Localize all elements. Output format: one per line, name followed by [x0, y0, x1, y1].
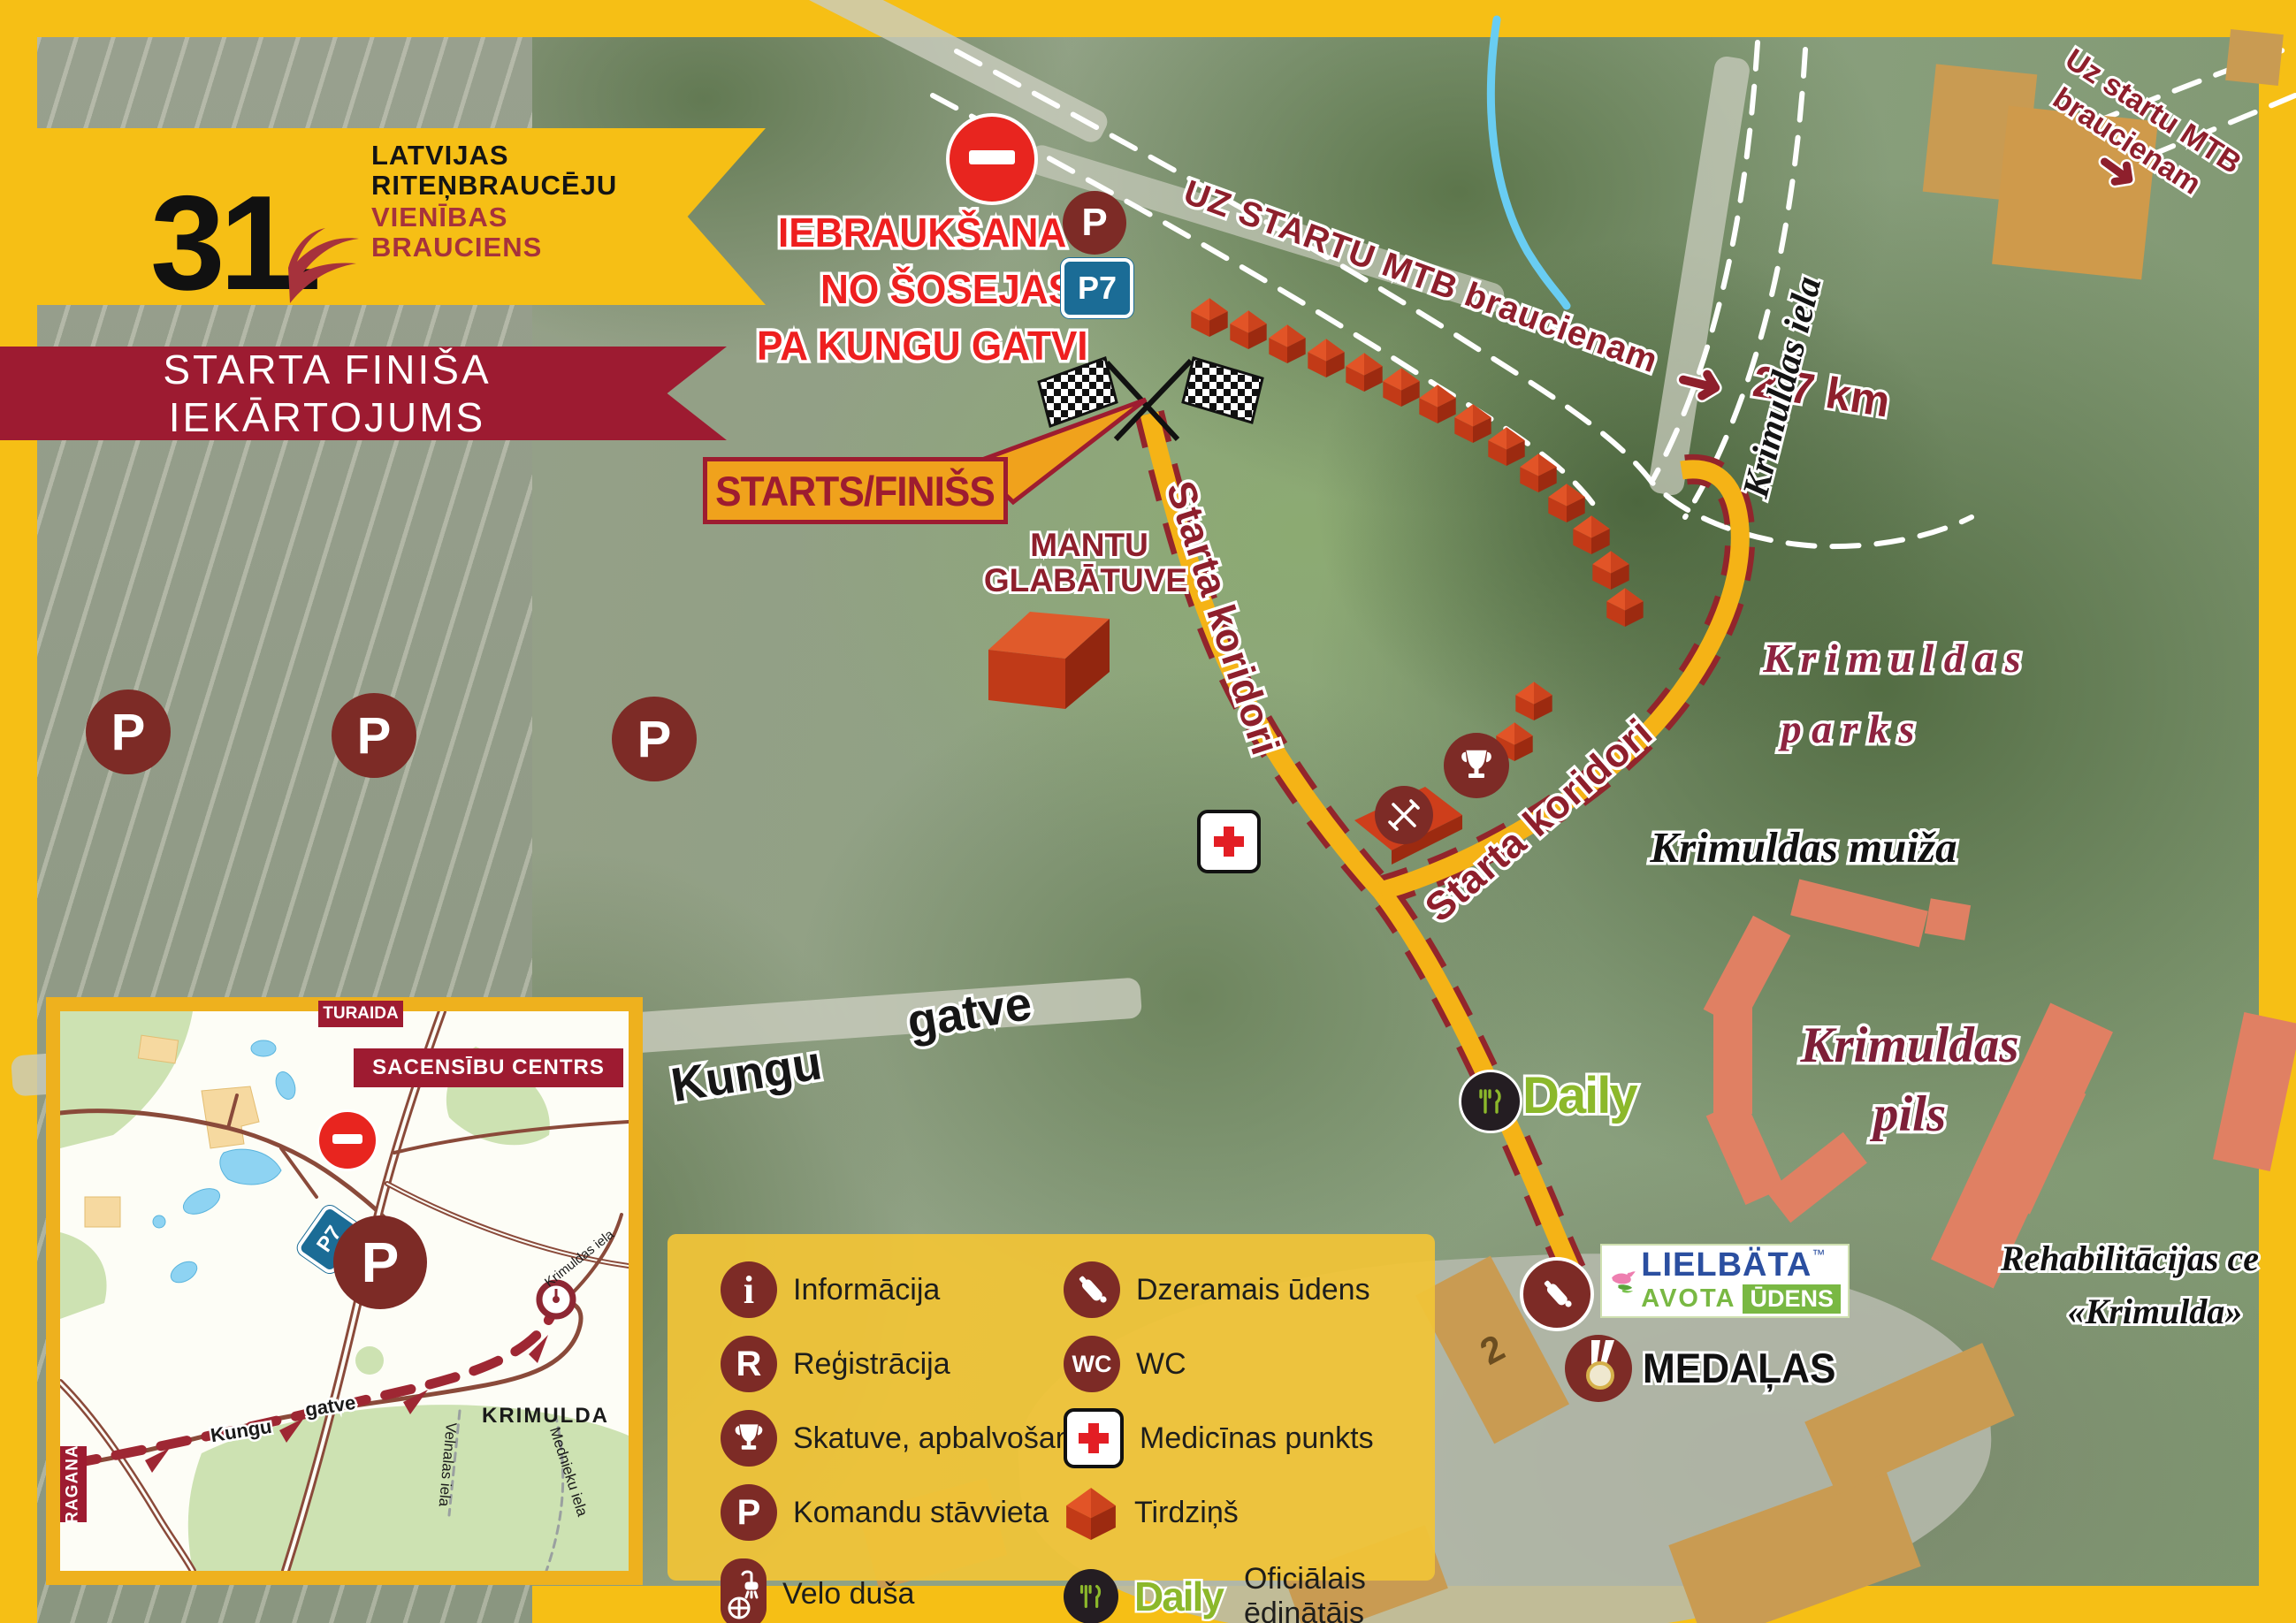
wing-icon	[281, 219, 361, 308]
legend-label: Velo duša	[782, 1577, 914, 1612]
lielbata-avota: AVOTA	[1641, 1284, 1735, 1314]
no-entry-sign	[317, 1109, 378, 1171]
road-sign-p7: P7	[1061, 258, 1133, 318]
legend-label: Informācija	[793, 1273, 940, 1307]
place-muiza: Krimuldas muiža	[1583, 822, 2025, 872]
entry-note-line2: NO ŠOSEJAS	[820, 265, 1074, 313]
place-parks-line1: K r i m u l d a s	[1706, 635, 2078, 682]
medical-icon	[1064, 1408, 1124, 1468]
legend-label: Reģistrācija	[793, 1347, 950, 1382]
no-entry-sign	[946, 113, 1038, 205]
parking-icon: P	[333, 1215, 427, 1309]
lakes	[153, 1040, 299, 1287]
town-label-krimulda: KRIMULDA	[482, 1404, 609, 1429]
tent-icon	[1454, 404, 1491, 443]
event-name-line1: VIENĪBAS	[371, 202, 507, 233]
place-parks-line2: p a r k s	[1662, 705, 2033, 752]
lielbata-udens: ŪDENS	[1743, 1284, 1841, 1314]
daily-wordmark: Daily	[1134, 1573, 1223, 1620]
tent-icon	[1230, 310, 1266, 349]
wc-icon: WC	[1064, 1336, 1120, 1392]
parking-icon: P	[721, 1484, 777, 1541]
place-rehab-line1: Rehabilitācijas ce	[1901, 1238, 2259, 1279]
org-name-line2: RITEŅBRAUCĒJU	[371, 170, 617, 202]
legend-item: P Komandu stāvvieta	[721, 1482, 1089, 1543]
lielbata-tm: ™	[1812, 1247, 1825, 1262]
bird-icon	[1609, 1250, 1636, 1312]
place-pils-line1: Krimuldas	[1733, 1017, 2086, 1074]
event-name-line2: BRAUCIENS	[371, 232, 542, 263]
tent-icon	[1064, 1485, 1118, 1540]
place-pils-line2: pils	[1733, 1086, 2086, 1143]
parking-icon: P	[332, 693, 416, 778]
medal-icon	[1565, 1335, 1632, 1402]
food-icon	[1375, 786, 1433, 844]
legend-item: i Informācija	[721, 1259, 1089, 1321]
daily-wordmark: Daily	[1522, 1066, 1636, 1125]
legend-label: Tirdziņš	[1134, 1496, 1239, 1530]
storage-label-line2: GLABĀTUVE	[953, 562, 1218, 599]
legend-item: R Reģistrācija	[721, 1333, 1089, 1395]
title-ribbon: STARTA FINIŠA IEKĀRTOJUMS	[0, 347, 727, 440]
building-number: 2	[1473, 1326, 1511, 1373]
tent-icon	[1592, 551, 1629, 590]
entry-note-line1: IEBRAUKŠANA	[778, 209, 1066, 256]
daily-utensils-icon	[1459, 1070, 1522, 1133]
pils-footprint	[1925, 898, 1971, 940]
storage-house-icon	[988, 612, 1110, 709]
legend-item: Skatuve, apbalvošana	[721, 1407, 1089, 1469]
legend-label: Komandu stāvvieta	[793, 1496, 1049, 1530]
storage-label-line1: MANTU	[992, 527, 1186, 564]
tent-icon	[1308, 339, 1344, 377]
entry-note-line3: PA KUNGU GATVI	[757, 322, 1088, 370]
legend-item: Dzeramais ūdens	[1064, 1259, 1374, 1321]
legend-item: Daily Oficiālaisēdinātājs	[1064, 1556, 1374, 1623]
tent-icon	[1191, 298, 1227, 337]
tent-icon	[1269, 324, 1305, 363]
legend-item: WC WC	[1064, 1333, 1374, 1395]
bike-shower-icon	[721, 1558, 767, 1623]
center-clock-icon	[539, 1283, 573, 1316]
legend-item: Medicīnas punkts	[1064, 1407, 1374, 1469]
water-bottle-icon	[1520, 1257, 1594, 1331]
building-footprint	[2225, 29, 2284, 86]
tent-icon	[1606, 588, 1643, 627]
start-finish-box: STARTS/FINIŠS	[703, 457, 1008, 524]
parking-icon: P	[1063, 191, 1126, 255]
lielbata-brand: LIELBÄTA	[1641, 1246, 1812, 1284]
page-title: STARTA FINIŠA IEKĀRTOJUMS	[0, 346, 654, 441]
tent-icon	[1515, 682, 1552, 720]
info-icon: i	[721, 1261, 777, 1318]
tent-icon	[1419, 385, 1455, 423]
water-bottle-icon	[1064, 1261, 1120, 1318]
trophy-icon	[721, 1410, 777, 1467]
registration-icon: R	[721, 1336, 777, 1392]
legend-item: Tirdziņš	[1064, 1482, 1374, 1543]
parking-icon: P	[86, 690, 171, 774]
medical-icon	[1197, 810, 1261, 873]
competition-center-label: SACENSĪBU CENTRS	[354, 1048, 623, 1087]
legend-label: WC	[1136, 1347, 1186, 1382]
tent-icon	[1488, 427, 1524, 466]
org-name-line1: LATVIJAS	[371, 140, 509, 171]
lielbata-logo: LIELBÄTA™ AVOTA ŪDENS	[1600, 1244, 1850, 1318]
legend-label: Skatuve, apbalvošana	[793, 1421, 1089, 1456]
legend-label: Medicīnas punkts	[1140, 1421, 1374, 1456]
tent-icon	[1573, 515, 1609, 554]
daily-utensils-icon	[1064, 1569, 1118, 1623]
legend-item: Velo duša	[721, 1556, 1089, 1623]
legend-label: Dzeramais ūdens	[1136, 1273, 1370, 1307]
stream	[1491, 19, 1567, 306]
town-label-ragana: RAGANA	[60, 1446, 87, 1522]
place-rehab-line2: «Krimulda»	[2051, 1291, 2259, 1332]
parking-icon: P	[612, 697, 697, 781]
legend-label: Oficiālaisēdinātājs	[1244, 1562, 1366, 1623]
medals-label: MEDAĻAS	[1643, 1344, 1835, 1392]
event-map-poster: 2 31. LATVIJAS RITEŅBRAUCĒJU VIENĪBAS BR…	[0, 0, 2296, 1623]
town-label-turaida: TURAIDA	[318, 1001, 403, 1027]
legend-panel: i Informācija R Reģistrācija Skatuve, ap…	[667, 1234, 1435, 1581]
trophy-icon	[1444, 733, 1509, 798]
tent-icon	[1346, 353, 1382, 392]
